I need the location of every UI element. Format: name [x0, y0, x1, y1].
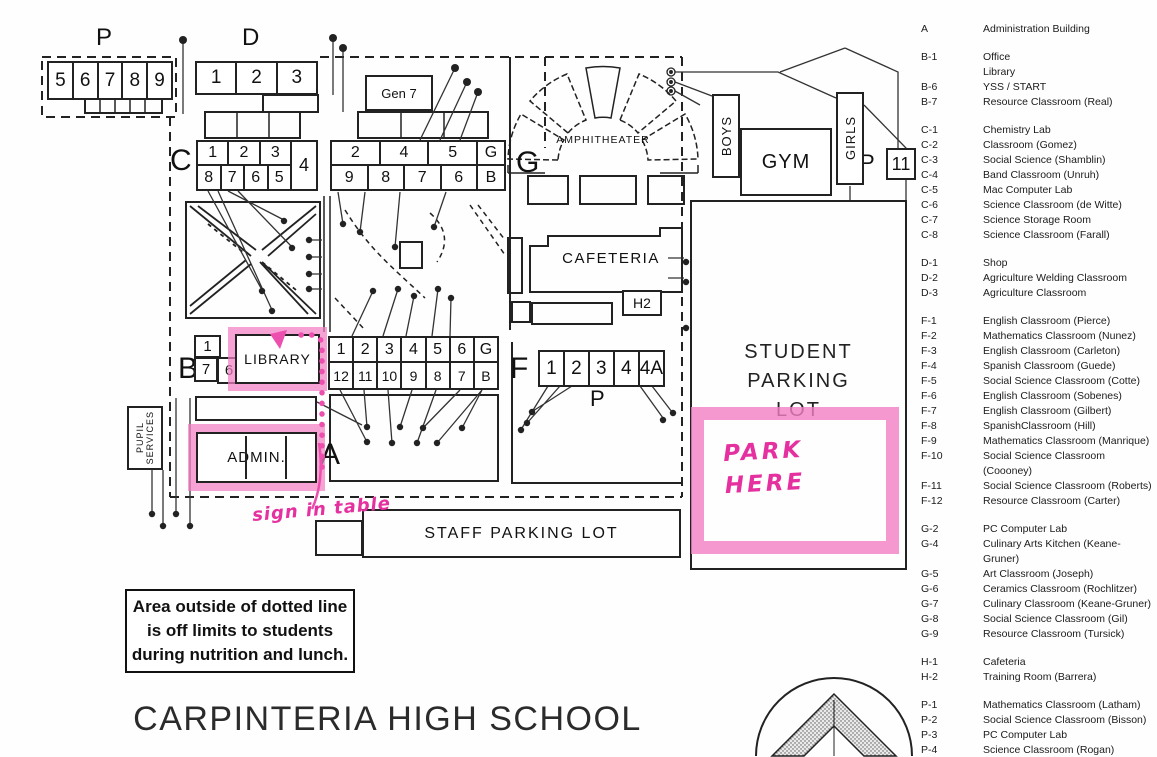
room-cell: 2 [352, 336, 378, 363]
legend-code: C-1 [905, 123, 983, 138]
legend-code: P-4 [905, 743, 983, 757]
room-cell: 2 [330, 140, 381, 166]
legend-code: F-10 [905, 449, 983, 479]
room-cell: 6 [440, 164, 479, 191]
legend-code: B-1 [905, 50, 983, 65]
building-outlines [85, 57, 684, 555]
legend-row: C-3Social Science (Shamblin) [905, 153, 1155, 168]
legend-code: P-3 [905, 728, 983, 743]
f-block-bottom-row: 121110987B [328, 361, 499, 390]
p-northwest-row: 56789 [47, 61, 173, 100]
legend-group-d: D-1ShopD-2Agriculture Welding ClassroomD… [905, 256, 1155, 301]
legend-label: Culinary Arts Kitchen (Keane-Gruner) [983, 537, 1155, 567]
staff-parking-lot: STAFF PARKING LOT [362, 509, 681, 558]
legend-row: D-1Shop [905, 256, 1155, 271]
amphitheater-label: AMPHITHEATER [540, 134, 666, 146]
legend-label: Mathematics Classroom (Latham) [983, 698, 1155, 713]
boys-building: BOYS [712, 94, 740, 178]
room-cell: 12 [328, 361, 354, 390]
legend-row: F-8SpanishClassroom (Hill) [905, 419, 1155, 434]
g-block-bottom-row: 9876B [330, 164, 506, 191]
p-northwest-label: P [96, 24, 112, 52]
boys-label: BOYS [719, 116, 734, 156]
f-block-label: F [510, 352, 528, 386]
h2-room-cell: H2 [622, 290, 662, 316]
room-cell: 6 [449, 336, 475, 363]
c-block-bottom-row: 8765 [196, 164, 292, 191]
room-cell: 5 [427, 140, 478, 166]
legend-label: Social Science Classroom (Bisson) [983, 713, 1155, 728]
room-cell: 10 [376, 361, 402, 390]
legend-code: C-2 [905, 138, 983, 153]
legend-row: F-12Resource Classroom (Carter) [905, 494, 1155, 509]
admin-divider [285, 436, 287, 479]
legend-group-g: G-2PC Computer LabG-4Culinary Arts Kitch… [905, 522, 1155, 642]
legend-label: Science Storage Room [983, 213, 1155, 228]
park-here-annotation: PARK HERE [722, 434, 806, 502]
room-cell: 7 [449, 361, 475, 390]
legend-code: F-12 [905, 494, 983, 509]
legend-label: Science Classroom (de Witte) [983, 198, 1155, 213]
room-cell: 4 [400, 336, 426, 363]
quad-walkways [186, 196, 330, 332]
legend-label: PC Computer Lab [983, 728, 1155, 743]
room-cell: B [473, 361, 499, 390]
legend-row: C-4Band Classroom (Unruh) [905, 168, 1155, 183]
legend-row: F-4Spanish Classroom (Guede) [905, 359, 1155, 374]
legend-row: P-4Science Classroom (Rogan) [905, 743, 1155, 757]
legend-label: Ceramics Classroom (Rochlitzer) [983, 582, 1155, 597]
legend-label: Resource Classroom (Carter) [983, 494, 1155, 509]
room-cell: G [476, 140, 506, 166]
room-cell: 1 [538, 350, 565, 387]
room-cell: 1 [328, 336, 354, 363]
c-block-label: C [170, 144, 192, 178]
room-cell: 2 [235, 61, 277, 95]
legend-row: G-7Culinary Classroom (Keane-Gruner) [905, 597, 1155, 612]
legend-row: G-5Art Classroom (Joseph) [905, 567, 1155, 582]
legend-label: Agriculture Welding Classroom [983, 271, 1155, 286]
legend-label: English Classroom (Carleton) [983, 344, 1155, 359]
legend-label: Social Science Classroom (Coooney) [983, 449, 1155, 479]
p-portables-row: 12344A [538, 350, 665, 387]
room-cell: 7 [97, 61, 124, 100]
legend-label: YSS / START [983, 80, 1155, 95]
off-limits-note: Area outside of dotted line is off limit… [125, 589, 355, 673]
legend-label: Social Science Classroom (Roberts) [983, 479, 1155, 494]
room-cell: G [473, 336, 499, 363]
park-here-line1: PARK [722, 434, 804, 470]
cafeteria-label: CAFETERIA [548, 250, 674, 267]
legend-label: PC Computer Lab [983, 522, 1155, 537]
legend-row: D-2Agriculture Welding Classroom [905, 271, 1155, 286]
room-cell: 5 [425, 336, 451, 363]
legend-row: C-1Chemistry Lab [905, 123, 1155, 138]
legend-label: Mathematics Classroom (Manrique) [983, 434, 1155, 449]
room-cell: 9 [146, 61, 173, 100]
legend-row: C-2Classroom (Gomez) [905, 138, 1155, 153]
g-block-top-row: 245G [330, 140, 506, 166]
legend-row: C-6Science Classroom (de Witte) [905, 198, 1155, 213]
legend-row: B-7Resource Classroom (Real) [905, 95, 1155, 110]
legend-label: Science Classroom (Rogan) [983, 743, 1155, 757]
legend-code: G-2 [905, 522, 983, 537]
legend-label: Science Classroom (Farall) [983, 228, 1155, 243]
room-cell: 8 [367, 164, 406, 191]
legend-label: Mathematics Classroom (Nunez) [983, 329, 1155, 344]
legend-code: F-9 [905, 434, 983, 449]
legend-row: H-2Training Room (Barrera) [905, 670, 1155, 685]
legend-code: G-9 [905, 627, 983, 642]
room-cell: 8 [196, 164, 222, 191]
legend-code [905, 65, 983, 80]
c4-room-cell: 4 [290, 140, 318, 191]
pupil-services-building: PUPIL SERVICES [127, 406, 163, 470]
legend-group-p: P-1Mathematics Classroom (Latham)P-2Soci… [905, 698, 1155, 757]
c-block-top-row: 123 [196, 140, 292, 166]
legend-label: Band Classroom (Unruh) [983, 168, 1155, 183]
room-cell: 3 [259, 140, 292, 166]
legend-label: Mac Computer Lab [983, 183, 1155, 198]
girls-building: GIRLS [836, 92, 864, 185]
g-area-label: G [516, 146, 539, 180]
legend-row: B-1Office [905, 50, 1155, 65]
legend-label: Cafeteria [983, 655, 1155, 670]
legend-label: English Classroom (Sobenes) [983, 389, 1155, 404]
room-cell: 4 [613, 350, 640, 387]
b1-room-cell: 1 [194, 335, 221, 358]
legend-row: F-6English Classroom (Sobenes) [905, 389, 1155, 404]
legend-code: D-1 [905, 256, 983, 271]
a-building-label: A [320, 438, 340, 472]
legend-label: Social Science Classroom (Gil) [983, 612, 1155, 627]
legend-row: D-3Agriculture Classroom [905, 286, 1155, 301]
admin-label: ADMIN. [227, 449, 286, 466]
legend-code: F-6 [905, 389, 983, 404]
admin-building: ADMIN. [196, 432, 317, 483]
legend-label: Culinary Classroom (Keane-Gruner) [983, 597, 1155, 612]
legend-row: F-7English Classroom (Gilbert) [905, 404, 1155, 419]
note-line2: is off limits to students [127, 619, 353, 643]
note-line1: Area outside of dotted line [127, 595, 353, 619]
legend-label: Agriculture Classroom [983, 286, 1155, 301]
legend-code: F-11 [905, 479, 983, 494]
legend-code: G-6 [905, 582, 983, 597]
legend-row: G-6Ceramics Classroom (Rochlitzer) [905, 582, 1155, 597]
d-block-label: D [242, 24, 259, 52]
legend-row: C-8Science Classroom (Farall) [905, 228, 1155, 243]
room-cell: 9 [400, 361, 426, 390]
legend-code: F-2 [905, 329, 983, 344]
room-cell: 7 [220, 164, 246, 191]
compass-rose-icon [756, 678, 912, 756]
park-here-line2: HERE [724, 466, 806, 502]
room-cell: 4A [638, 350, 665, 387]
legend-code: C-4 [905, 168, 983, 183]
legend-label: Classroom (Gomez) [983, 138, 1155, 153]
library-building: LIBRARY [235, 334, 320, 384]
legend-row: G-2PC Computer Lab [905, 522, 1155, 537]
girls-label: GIRLS [843, 116, 858, 160]
room-cell: 3 [588, 350, 615, 387]
legend-code: G-4 [905, 537, 983, 567]
legend-code: D-2 [905, 271, 983, 286]
legend-code: A [905, 22, 983, 37]
legend-code: F-8 [905, 419, 983, 434]
room-cell: 6 [243, 164, 269, 191]
legend-label: Office [983, 50, 1155, 65]
legend-label: Resource Classroom (Real) [983, 95, 1155, 110]
legend-row: F-1English Classroom (Pierce) [905, 314, 1155, 329]
legend-label: Social Science (Shamblin) [983, 153, 1155, 168]
legend-row: H-1Cafeteria [905, 655, 1155, 670]
legend-code: F-4 [905, 359, 983, 374]
legend: AAdministration Building B-1OfficeLibrar… [905, 22, 1155, 757]
room-cell: 3 [376, 336, 402, 363]
circled-pins [667, 68, 675, 95]
legend-code: F-1 [905, 314, 983, 329]
legend-label: Shop [983, 256, 1155, 271]
legend-code: G-7 [905, 597, 983, 612]
legend-label: Spanish Classroom (Guede) [983, 359, 1155, 374]
room-cell: 1 [195, 61, 237, 95]
legend-row: C-5Mac Computer Lab [905, 183, 1155, 198]
gym-building: GYM [740, 128, 832, 196]
room-cell: B [476, 164, 506, 191]
legend-label: Chemistry Lab [983, 123, 1155, 138]
legend-group-a: AAdministration Building [905, 22, 1155, 37]
room-cell: 8 [425, 361, 451, 390]
legend-row: F-3English Classroom (Carleton) [905, 344, 1155, 359]
student-lot-line2: PARKING [747, 367, 850, 396]
legend-code: C-8 [905, 228, 983, 243]
room-cell: 4 [379, 140, 430, 166]
legend-code: H-2 [905, 670, 983, 685]
legend-code: P-1 [905, 698, 983, 713]
legend-row: P-1Mathematics Classroom (Latham) [905, 698, 1155, 713]
legend-row: P-3PC Computer Lab [905, 728, 1155, 743]
legend-group-f: F-1English Classroom (Pierce)F-2Mathemat… [905, 314, 1155, 509]
admin-divider [245, 436, 247, 479]
legend-label: Training Room (Barrera) [983, 670, 1155, 685]
legend-row: Library [905, 65, 1155, 80]
legend-row: C-7Science Storage Room [905, 213, 1155, 228]
legend-row: G-4Culinary Arts Kitchen (Keane-Gruner) [905, 537, 1155, 567]
legend-row: AAdministration Building [905, 22, 1155, 37]
legend-row: F-10Social Science Classroom (Coooney) [905, 449, 1155, 479]
legend-row: F-9Mathematics Classroom (Manrique) [905, 434, 1155, 449]
legend-group-h: H-1CafeteriaH-2Training Room (Barrera) [905, 655, 1155, 685]
legend-code: P-2 [905, 713, 983, 728]
legend-row: G-8Social Science Classroom (Gil) [905, 612, 1155, 627]
room-cell: 1 [196, 140, 229, 166]
room-cell: 2 [563, 350, 590, 387]
legend-code: F-3 [905, 344, 983, 359]
legend-label: English Classroom (Gilbert) [983, 404, 1155, 419]
legend-group-b: B-1OfficeLibraryB-6YSS / STARTB-7Resourc… [905, 50, 1155, 110]
d-block-row: 123 [195, 61, 318, 95]
legend-code: G-8 [905, 612, 983, 627]
legend-row: F-11Social Science Classroom (Roberts) [905, 479, 1155, 494]
legend-label: English Classroom (Pierce) [983, 314, 1155, 329]
p-portables-label: P [590, 386, 605, 412]
legend-code: H-1 [905, 655, 983, 670]
room-cell: 11 [352, 361, 378, 390]
legend-code: C-3 [905, 153, 983, 168]
legend-group-c: C-1Chemistry LabC-2Classroom (Gomez)C-3S… [905, 123, 1155, 243]
student-lot-line1: STUDENT [744, 338, 852, 367]
room-cell: 9 [330, 164, 369, 191]
room-cell: 8 [121, 61, 148, 100]
room-cell: 6 [72, 61, 99, 100]
legend-row: G-9Resource Classroom (Tursick) [905, 627, 1155, 642]
room-cell: 2 [227, 140, 260, 166]
campus-map-page: P D C G B F A P P 56789 123 123 8765 4 2… [0, 0, 1157, 757]
legend-code: B-6 [905, 80, 983, 95]
legend-label: Resource Classroom (Tursick) [983, 627, 1155, 642]
legend-code: C-5 [905, 183, 983, 198]
legend-code: F-5 [905, 374, 983, 389]
note-line3: during nutrition and lunch. [127, 643, 353, 667]
legend-label: Art Classroom (Joseph) [983, 567, 1155, 582]
legend-row: P-2Social Science Classroom (Bisson) [905, 713, 1155, 728]
room-cell: 3 [276, 61, 318, 95]
page-title: CARPINTERIA HIGH SCHOOL [115, 700, 660, 739]
legend-label: Social Science Classroom (Cotte) [983, 374, 1155, 389]
legend-code: G-5 [905, 567, 983, 582]
legend-code: D-3 [905, 286, 983, 301]
room-cell: 5 [267, 164, 293, 191]
pupil-services-label-1: PUPIL [135, 422, 145, 453]
legend-code: C-6 [905, 198, 983, 213]
legend-label: Library [983, 65, 1155, 80]
legend-code: C-7 [905, 213, 983, 228]
legend-row: F-2Mathematics Classroom (Nunez) [905, 329, 1155, 344]
pupil-services-label-2: SERVICES [145, 411, 155, 464]
legend-label: SpanishClassroom (Hill) [983, 419, 1155, 434]
room-cell: 5 [47, 61, 74, 100]
f-block-top-row: 123456G [328, 336, 499, 363]
legend-row: F-5Social Science Classroom (Cotte) [905, 374, 1155, 389]
legend-code: B-7 [905, 95, 983, 110]
b7-room-cell: 7 [194, 357, 218, 382]
legend-label: Administration Building [983, 22, 1155, 37]
room-cell: 7 [403, 164, 442, 191]
gen7-building: Gen 7 [365, 75, 433, 111]
legend-code: F-7 [905, 404, 983, 419]
legend-row: B-6YSS / START [905, 80, 1155, 95]
